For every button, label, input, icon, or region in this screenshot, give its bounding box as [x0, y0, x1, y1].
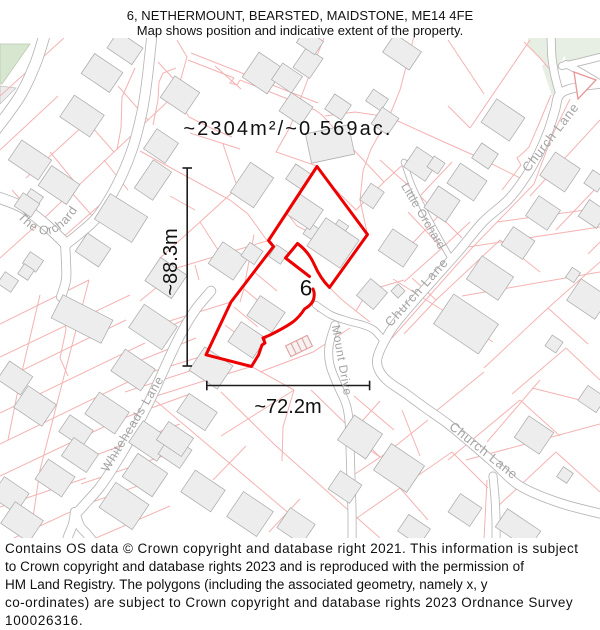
svg-text:~88.3m: ~88.3m — [160, 228, 182, 295]
svg-text:~72.2m: ~72.2m — [254, 396, 321, 418]
svg-text:~2304m²/~0.569ac.: ~2304m²/~0.569ac. — [183, 118, 392, 140]
svg-text:6: 6 — [300, 276, 313, 301]
